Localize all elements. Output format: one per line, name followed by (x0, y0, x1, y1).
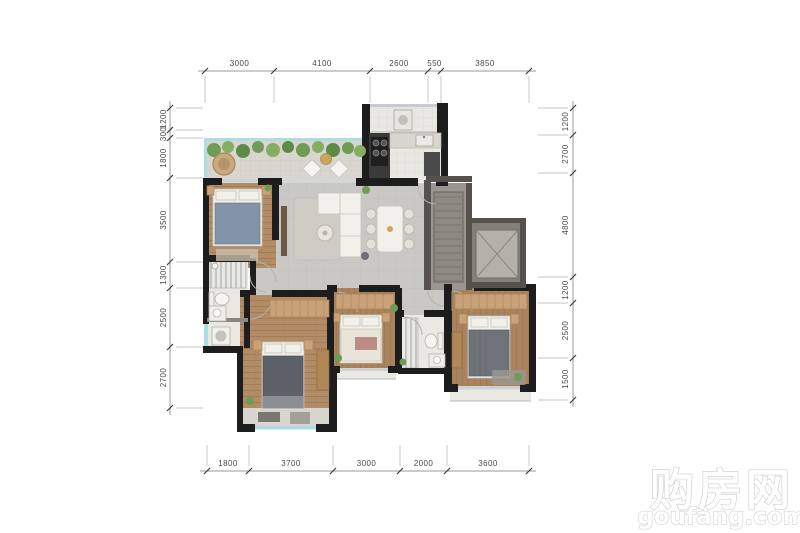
dim-label: 550 (427, 59, 442, 68)
wall-elevator-bottom (468, 282, 526, 288)
dining-chair (366, 239, 376, 249)
kitchen-window (370, 104, 439, 108)
watermark: 购房网 goufang.com (637, 465, 800, 530)
pillow (265, 344, 282, 353)
plant (334, 354, 342, 362)
dim-label: 1500 (561, 369, 570, 389)
bedroom1-rug (216, 249, 258, 261)
dim-label: 4800 (561, 215, 570, 235)
dim-top: 3000410026005503850 (198, 59, 536, 103)
balcony-mat (290, 412, 310, 424)
wall-bedroom3-right (529, 284, 536, 390)
pillow (362, 317, 379, 326)
pillow (471, 318, 488, 327)
dim-bottom: 18003700300020003600 (200, 445, 536, 474)
wall-elevator-right (520, 218, 526, 286)
dim-label: 2700 (561, 144, 570, 164)
wall-left-outer (203, 178, 209, 324)
wall-stair-left (424, 180, 431, 290)
burner (373, 140, 379, 146)
wall (237, 424, 255, 432)
nightstand (334, 313, 340, 322)
bedroom2-bed-runner (355, 337, 377, 350)
wall-bathroom1-right (250, 258, 256, 295)
wall-master-right (329, 368, 337, 432)
plant (514, 373, 522, 381)
nightstand (511, 314, 519, 324)
bedroom2-wardrobe (336, 294, 394, 309)
dim-label: 300 (159, 127, 168, 142)
bedroom3-wardrobe (455, 294, 527, 309)
sink (434, 357, 441, 364)
wall-kitchen-bottom (362, 178, 418, 186)
plant (265, 185, 272, 192)
pillow (216, 191, 236, 200)
side-table (361, 252, 369, 260)
burner (373, 150, 379, 156)
terrace-table (321, 154, 332, 165)
pillow (285, 344, 301, 353)
dim-label: 3000 (357, 459, 377, 468)
sink (213, 309, 221, 317)
dim-right: 120027004800120025001500 (538, 101, 576, 407)
dining-chair (366, 209, 376, 219)
nightstand (207, 186, 214, 195)
dim-label: 3000 (230, 59, 250, 68)
wall-kitchen-corner (437, 103, 448, 134)
wall-bedroom3-left (444, 284, 452, 392)
terrace-glass-rail-top (204, 138, 365, 141)
dim-label: 1200 (561, 112, 570, 132)
faucet (423, 136, 426, 139)
pillow (343, 317, 360, 326)
toilet (215, 293, 229, 305)
watermark-domain: goufang.com (637, 504, 800, 530)
wall-kitchen-left (362, 104, 370, 186)
toilet-tank (438, 333, 443, 349)
wall-stair-right (466, 183, 472, 290)
nightstand (253, 340, 262, 350)
terrace-sliding-door (282, 179, 356, 183)
master-wardrobe (270, 300, 329, 317)
dim-label: 2700 (159, 368, 168, 388)
plant (246, 397, 254, 405)
dining-centerpiece (387, 226, 393, 232)
dim-label: 2500 (159, 308, 168, 328)
burner (381, 140, 387, 146)
toilet-tank (209, 292, 214, 306)
washer-door (398, 115, 408, 125)
bedroom1-window (222, 179, 258, 183)
wall (327, 285, 337, 292)
nightstand (304, 340, 313, 350)
dining-chair (366, 224, 376, 234)
bedroom2-window (340, 368, 388, 371)
wall-stair-top (426, 176, 472, 182)
floor-plan-page: 3000410026005503850180037003000200036001… (0, 0, 800, 533)
sofa (340, 193, 361, 257)
bedroom1-blanket (215, 203, 260, 244)
bedroom3-dresser (452, 332, 462, 368)
bedroom3-window (458, 386, 520, 390)
wall-bedroom2-top (359, 285, 400, 292)
sofa-chaise (318, 193, 340, 214)
bed-throw (263, 396, 303, 408)
dining-chair (404, 224, 414, 234)
dim-label: 3600 (478, 459, 498, 468)
dim-label: 3700 (281, 459, 301, 468)
dim-left: 120030018003500130025002700 (159, 101, 203, 415)
dim-label: 1800 (218, 459, 238, 468)
dim-label: 2000 (414, 459, 434, 468)
plant (390, 304, 398, 312)
wall-master-left (237, 346, 243, 432)
master-dresser (317, 350, 329, 390)
dim-label: 3500 (159, 210, 168, 230)
nightstand (459, 314, 467, 324)
terrace-glass-rail-left (204, 138, 207, 183)
toilet (425, 334, 437, 348)
shower-head (212, 263, 218, 269)
pillow (239, 191, 259, 200)
plant (362, 186, 370, 194)
dim-label: 1200 (159, 109, 168, 129)
master-balcony-glass (255, 426, 316, 430)
dim-label: 1800 (159, 148, 168, 168)
dim-label: 2500 (561, 321, 570, 341)
bedroom3-blanket (469, 330, 509, 376)
plant (400, 359, 407, 366)
dim-label: 3850 (475, 59, 495, 68)
coffee-table-deco (323, 231, 328, 236)
bedroom3-bay-window (450, 388, 531, 401)
wall-elevator-top (468, 218, 526, 223)
stair-treads (435, 193, 462, 281)
wall (444, 384, 458, 392)
dim-label: 4100 (312, 59, 332, 68)
wall (520, 384, 536, 392)
dining-chair (404, 239, 414, 249)
laundry-window (204, 324, 208, 346)
dim-label: 2600 (389, 59, 409, 68)
dining-chair (404, 209, 414, 219)
fridge (424, 152, 440, 176)
wall-bedroom1-right (272, 183, 279, 240)
wall-bathroom2-bottom (398, 368, 448, 374)
hanging-chair-seat (218, 158, 230, 170)
nightstand (382, 313, 390, 322)
wall-master-top (272, 290, 331, 297)
wall (444, 284, 452, 291)
tv-console (281, 206, 287, 256)
dim-label: 1200 (561, 280, 570, 300)
balcony-bench (258, 412, 280, 422)
burner (381, 150, 387, 156)
dim-label: 1300 (159, 265, 168, 285)
washer-door (216, 331, 227, 342)
pillow (491, 318, 507, 327)
floor-plan-image: 3000410026005503850180037003000200036001… (0, 0, 800, 533)
